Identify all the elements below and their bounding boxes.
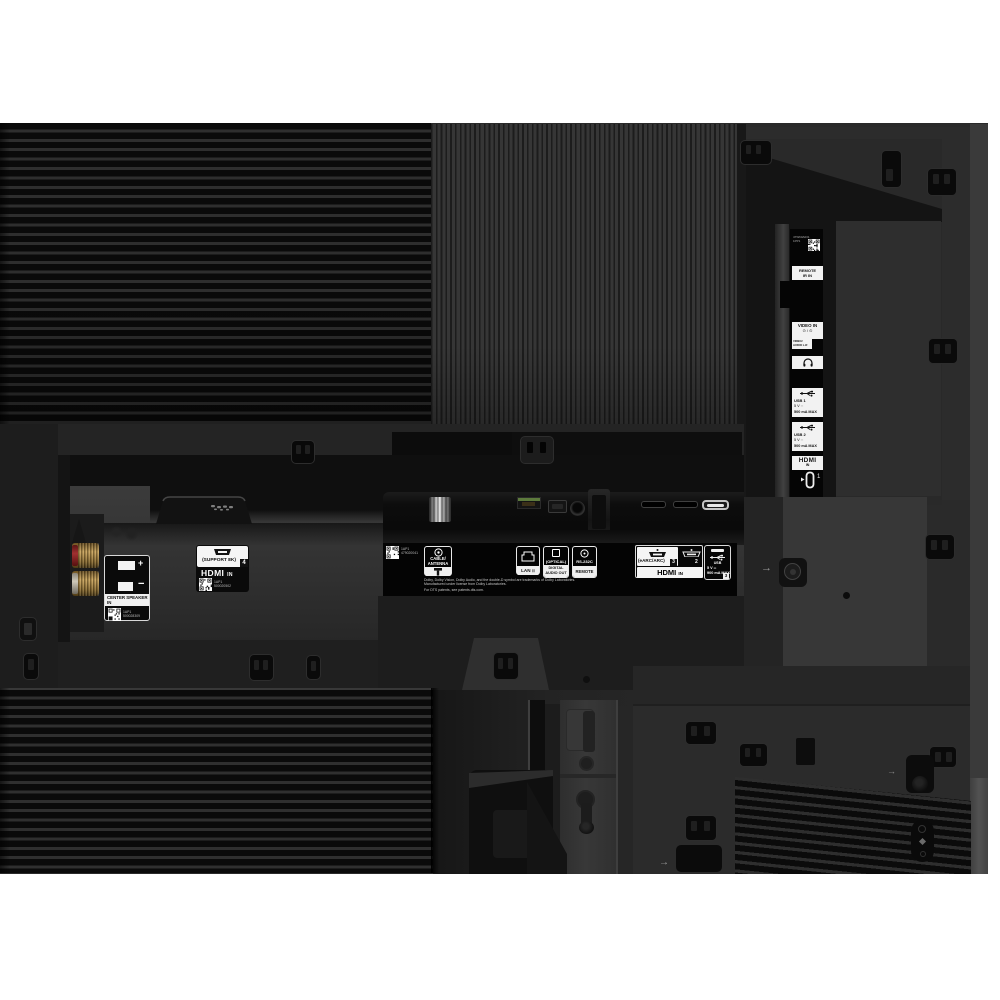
svg-text:1: 1 xyxy=(817,474,821,480)
